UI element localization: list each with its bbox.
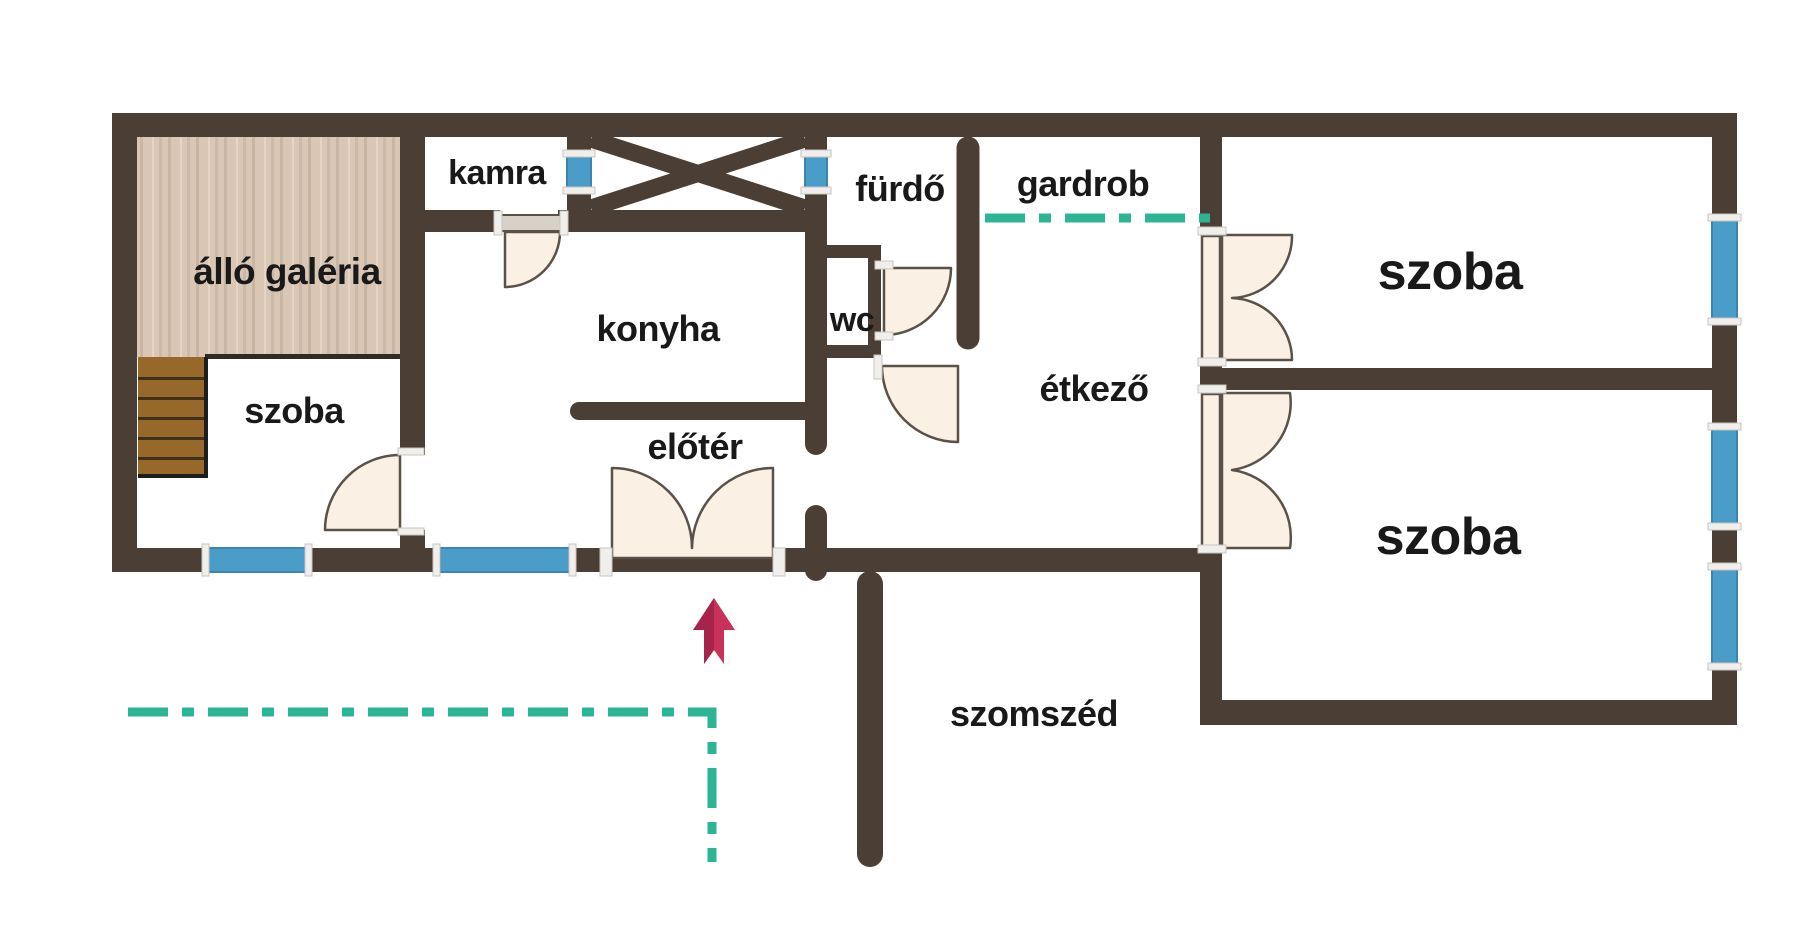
window-room-bottom-right-1: [1708, 423, 1741, 530]
door-wc: [875, 261, 951, 340]
stairs: [138, 357, 208, 478]
floor-plan: álló galéria szoba kamra konyha fürdő wc…: [0, 0, 1820, 940]
label-bathroom: fürdő: [855, 168, 944, 209]
shaft-x-cross: [591, 139, 805, 208]
window-bottom-hall: [433, 544, 576, 576]
label-pantry: kamra: [448, 154, 547, 192]
window-bottom-left: [202, 544, 312, 576]
label-toilet: wc: [829, 301, 874, 339]
label-gallery: álló galéria: [193, 251, 381, 292]
outside-boundary-line: [128, 712, 712, 862]
window-pantry-shaft: [563, 150, 595, 194]
window-shaft-bathroom: [801, 150, 831, 194]
door-room-bottom-right-double: [1198, 385, 1291, 553]
door-room-top-right-double: [1198, 227, 1292, 366]
label-room-top-right: szoba: [1378, 243, 1524, 301]
gallery-wood-floor: [137, 137, 400, 359]
label-dining: étkező: [1039, 368, 1148, 409]
label-room-bottom-right: szoba: [1376, 508, 1522, 566]
label-kitchen: konyha: [596, 308, 721, 349]
door-pantry: [494, 211, 568, 287]
label-wardrobe: gardrob: [1017, 163, 1150, 204]
window-room-top-right: [1708, 214, 1741, 325]
label-room-left: szoba: [244, 390, 345, 431]
label-hall: előtér: [647, 426, 743, 467]
floor-plan-canvas: álló galéria szoba kamra konyha fürdő wc…: [0, 0, 1820, 940]
up-arrow-entrance-icon: [693, 598, 735, 664]
door-bathroom-corridor: [874, 355, 958, 442]
door-room-left: [325, 448, 424, 535]
label-neighbor: szomszéd: [950, 693, 1118, 734]
window-room-bottom-right-2: [1708, 563, 1741, 670]
